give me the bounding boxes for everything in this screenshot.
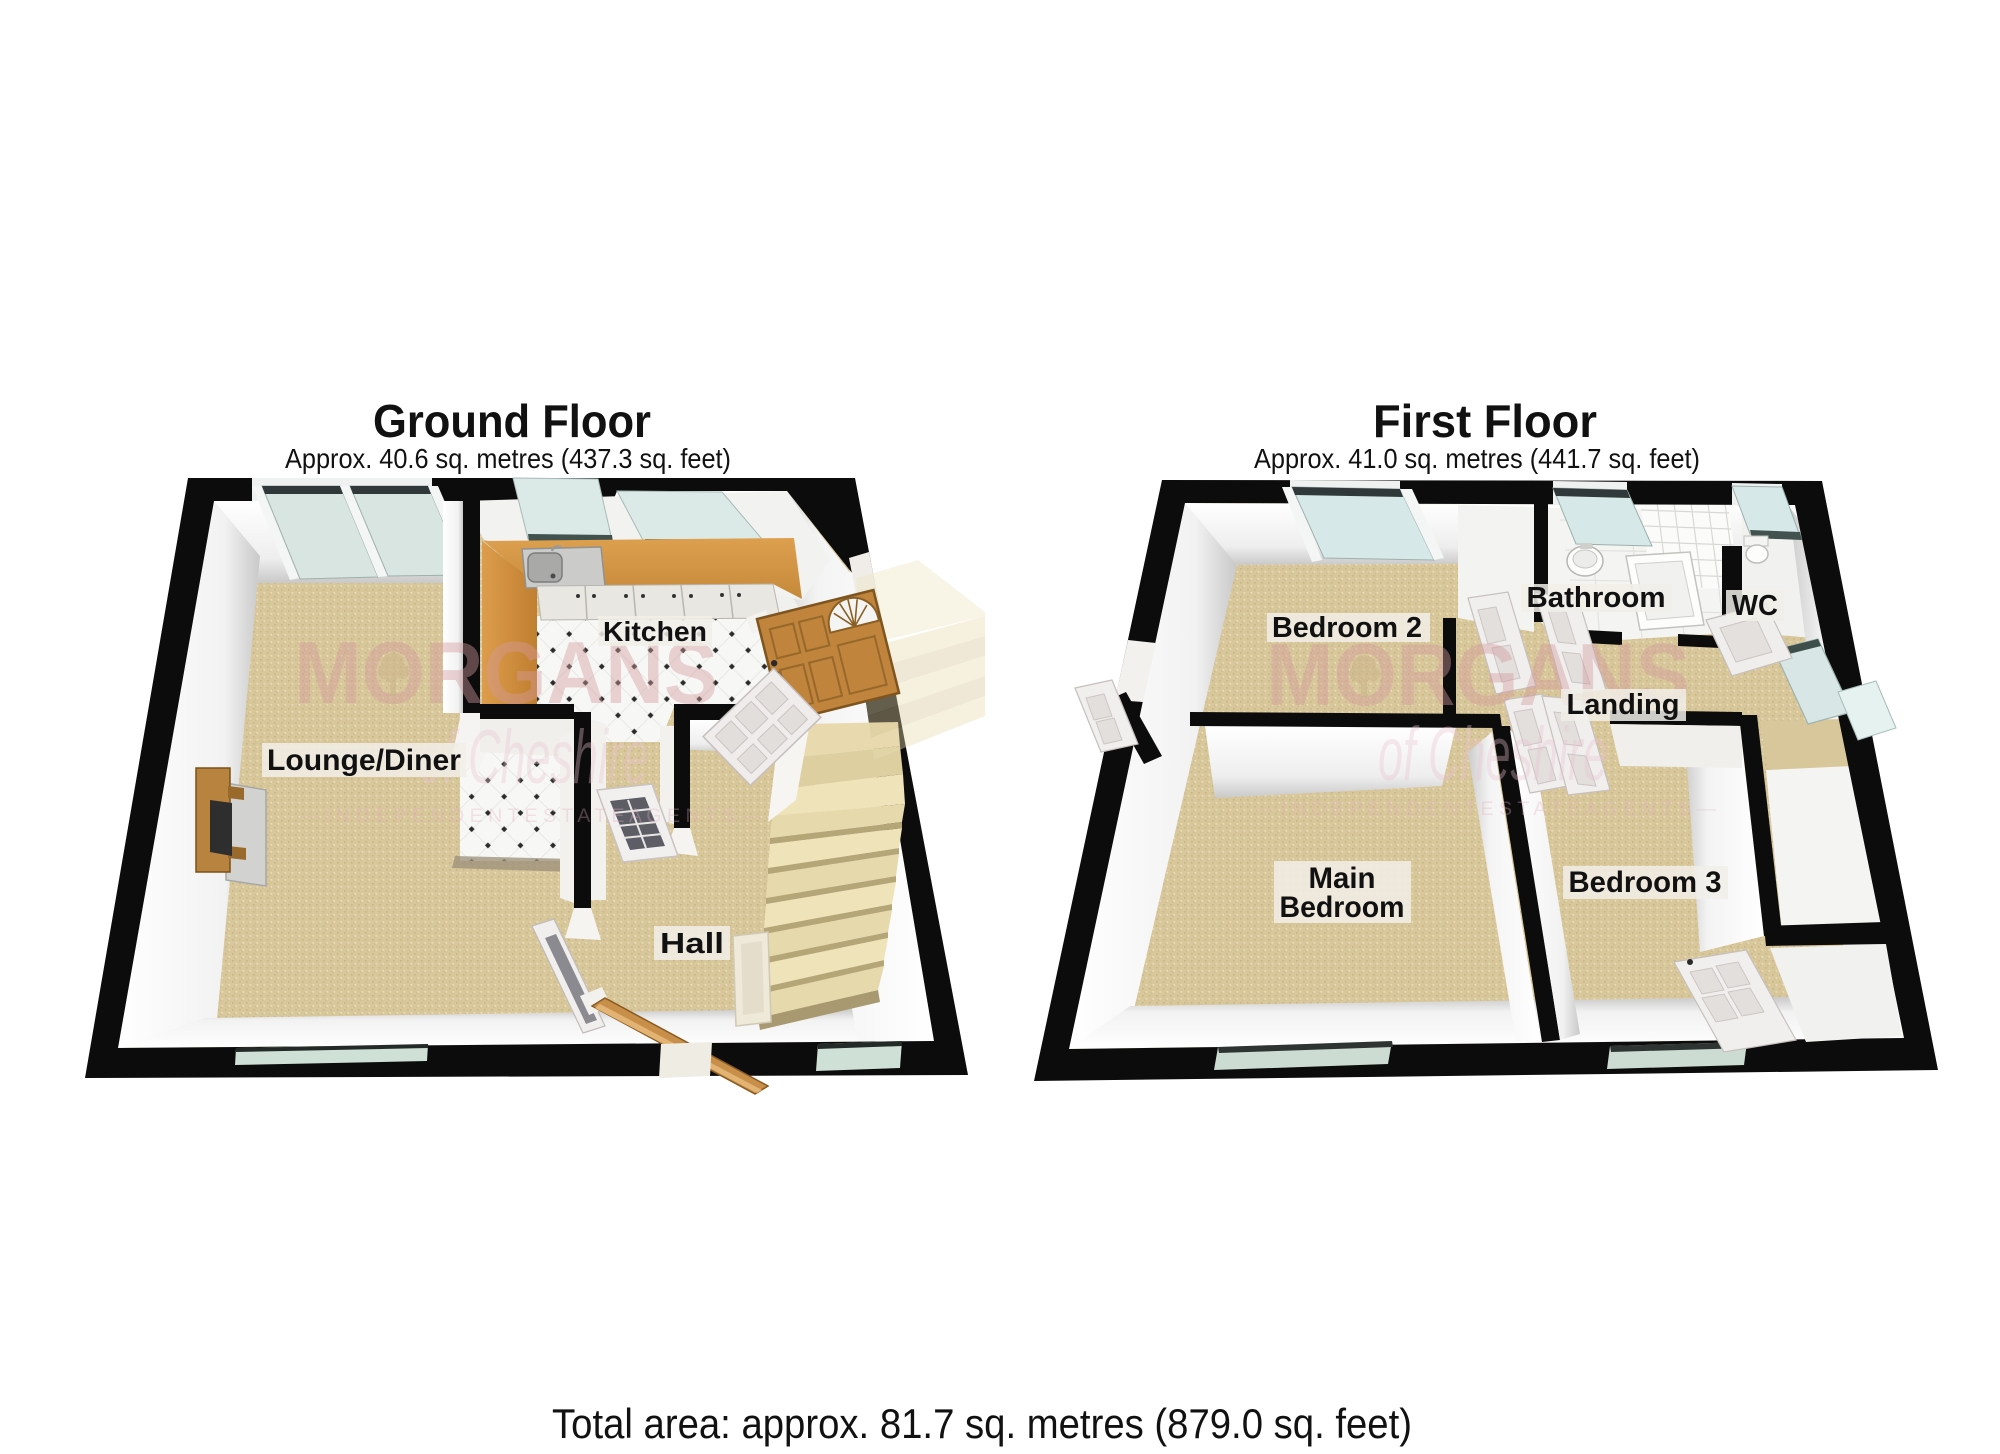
svg-text:Lounge/Diner: Lounge/Diner (267, 744, 461, 777)
svg-text:Approx. 40.6 sq. metres (437.3: Approx. 40.6 sq. metres (437.3 sq. feet) (285, 443, 731, 474)
svg-text:of Cheshire: of Cheshire (1378, 712, 1608, 797)
svg-text:First Floor: First Floor (1373, 395, 1597, 447)
svg-text:Landing: Landing (1567, 689, 1680, 721)
svg-text:Bedroom: Bedroom (1280, 891, 1405, 924)
svg-text:Bedroom 3: Bedroom 3 (1569, 866, 1722, 899)
svg-text:WC: WC (1732, 590, 1778, 622)
svg-text:Ground Floor: Ground Floor (373, 395, 651, 447)
svg-text:Bathroom: Bathroom (1527, 582, 1666, 614)
svg-text:Kitchen: Kitchen (603, 616, 707, 647)
svg-text:Approx. 41.0 sq. metres (441.7: Approx. 41.0 sq. metres (441.7 sq. feet) (1254, 443, 1700, 474)
svg-text:— I N D E P E N D E N T E S: — I N D E P E N D E N T E S T A T E A G … (1256, 799, 1716, 820)
svg-text:Bedroom 2: Bedroom 2 (1272, 612, 1422, 644)
svg-text:Hall: Hall (660, 928, 724, 960)
svg-text:— I N D E P E N D E N T E S: — I N D E P E N D E N T E S T A T E A G … (300, 806, 760, 827)
svg-text:Total area: approx. 81.7 sq. m: Total area: approx. 81.7 sq. metres (879… (552, 1400, 1412, 1447)
